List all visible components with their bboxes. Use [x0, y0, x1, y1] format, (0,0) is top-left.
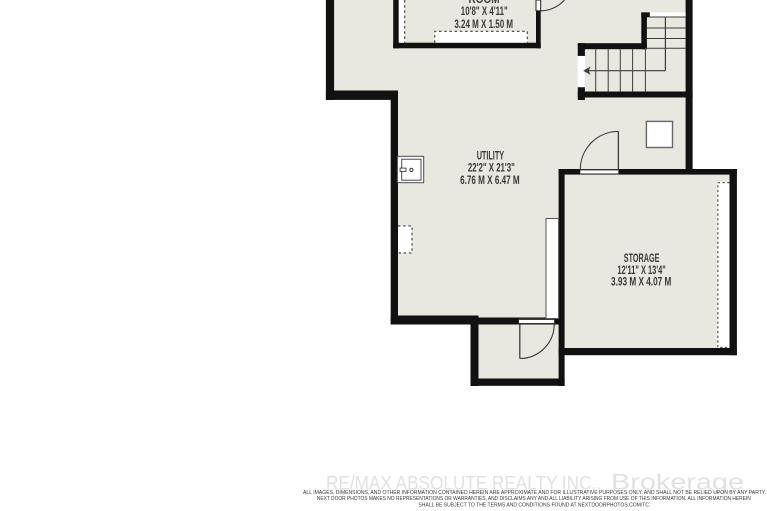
svg-text:3.93 M X 4.07 M: 3.93 M X 4.07 M [611, 275, 671, 289]
svg-text:3.24 M X 1.50 M: 3.24 M X 1.50 M [454, 17, 513, 31]
svg-text:ALL IMAGES, DIMENSIONS, AND OT: ALL IMAGES, DIMENSIONS, AND OTHER INFORM… [303, 490, 766, 496]
svg-text:10'8" X 4'11": 10'8" X 4'11" [461, 4, 508, 18]
svg-text:SHALL BE SUBJECT TO THE TERMS: SHALL BE SUBJECT TO THE TERMS AND CONDIT… [418, 503, 650, 509]
svg-text:6.76 M X 6.47 M: 6.76 M X 6.47 M [460, 173, 520, 187]
svg-text:NEXT DOOR PHOTOS MAKES NO REPR: NEXT DOOR PHOTOS MAKES NO REPRESENTATION… [317, 496, 751, 502]
